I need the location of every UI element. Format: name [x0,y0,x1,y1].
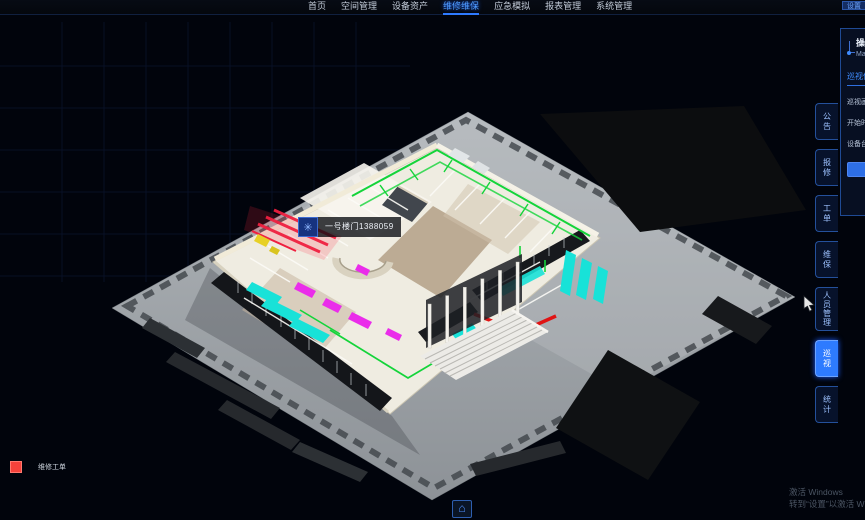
nav-item-maintenance[interactable]: 维修维保 [443,0,479,15]
nav-item-emergency-sim[interactable]: 应急模拟 [494,0,530,15]
legend-label: 维修工单 [38,462,66,472]
watermark-line2: 转到“设置”以激活 Windows。 [789,498,865,510]
panel-action-button[interactable]: 查看详情 [847,162,865,177]
model-tooltip-label: 一号楼门1388059 [318,217,401,237]
settings-chip[interactable]: 设置 [842,1,865,10]
rail-tab-maintenance[interactable]: 维保 [815,241,838,278]
watermark-line1: 激活 Windows [789,486,865,498]
legend-repair-work-order[interactable]: 维修工单 [10,461,66,473]
nav-item-equipment-assets[interactable]: 设备资产 [392,0,428,15]
nav-item-system-mgmt[interactable]: 系统管理 [596,0,632,15]
panel-row[interactable]: 巡视画面 [847,97,865,107]
bim-3d-viewport[interactable] [0,0,865,520]
rail-tab-personnel[interactable]: 人员管理 [815,287,838,331]
nav-item-home[interactable]: 首页 [308,0,326,15]
nav-item-report-mgmt[interactable]: 报表管理 [545,0,581,15]
top-navbar: 首页 空间管理 设备资产 维修维保 应急模拟 报表管理 系统管理 [0,0,865,15]
patrol-info-panel: 操作指南 Manual 巡视信息 巡视画面 开始时间 设备台账 查看详情 [840,28,865,216]
legend-red-swatch [10,461,22,473]
rail-tab-patrol[interactable]: 巡视 [815,340,838,377]
panel-row[interactable]: 设备台账 [847,139,865,149]
rail-tab-work-orders[interactable]: 工单 [815,195,838,232]
windows-activation-watermark: 激活 Windows 转到“设置”以激活 Windows。 [789,486,865,510]
fan-icon: ✳ [298,217,318,237]
home-icon[interactable]: ⌂ [452,500,472,518]
rail-tab-repair-request[interactable]: 报修 [815,149,838,186]
panel-title-row: 操作指南 Manual [847,36,865,58]
nav-item-space-mgmt[interactable]: 空间管理 [341,0,377,15]
right-tab-rail: 公告 报修 工单 维保 人员管理 巡视 统计 [815,103,839,423]
panel-row[interactable]: 开始时间 [847,118,865,128]
panel-section-header: 巡视信息 [847,71,865,86]
main-menu: 首页 空间管理 设备资产 维修维保 应急模拟 报表管理 系统管理 [308,0,632,15]
connector-dot [847,51,851,55]
model-tooltip[interactable]: ✳ 一号楼门1388059 [298,217,401,237]
panel-title: 操作指南 [856,36,865,49]
rail-tab-statistics[interactable]: 统计 [815,386,838,423]
rail-tab-announcements[interactable]: 公告 [815,103,838,140]
app-window: ✳ 一号楼门1388059 首页 空间管理 设备资产 维修维保 应急模拟 报表管… [0,0,865,520]
panel-subtitle: Manual [856,51,865,58]
